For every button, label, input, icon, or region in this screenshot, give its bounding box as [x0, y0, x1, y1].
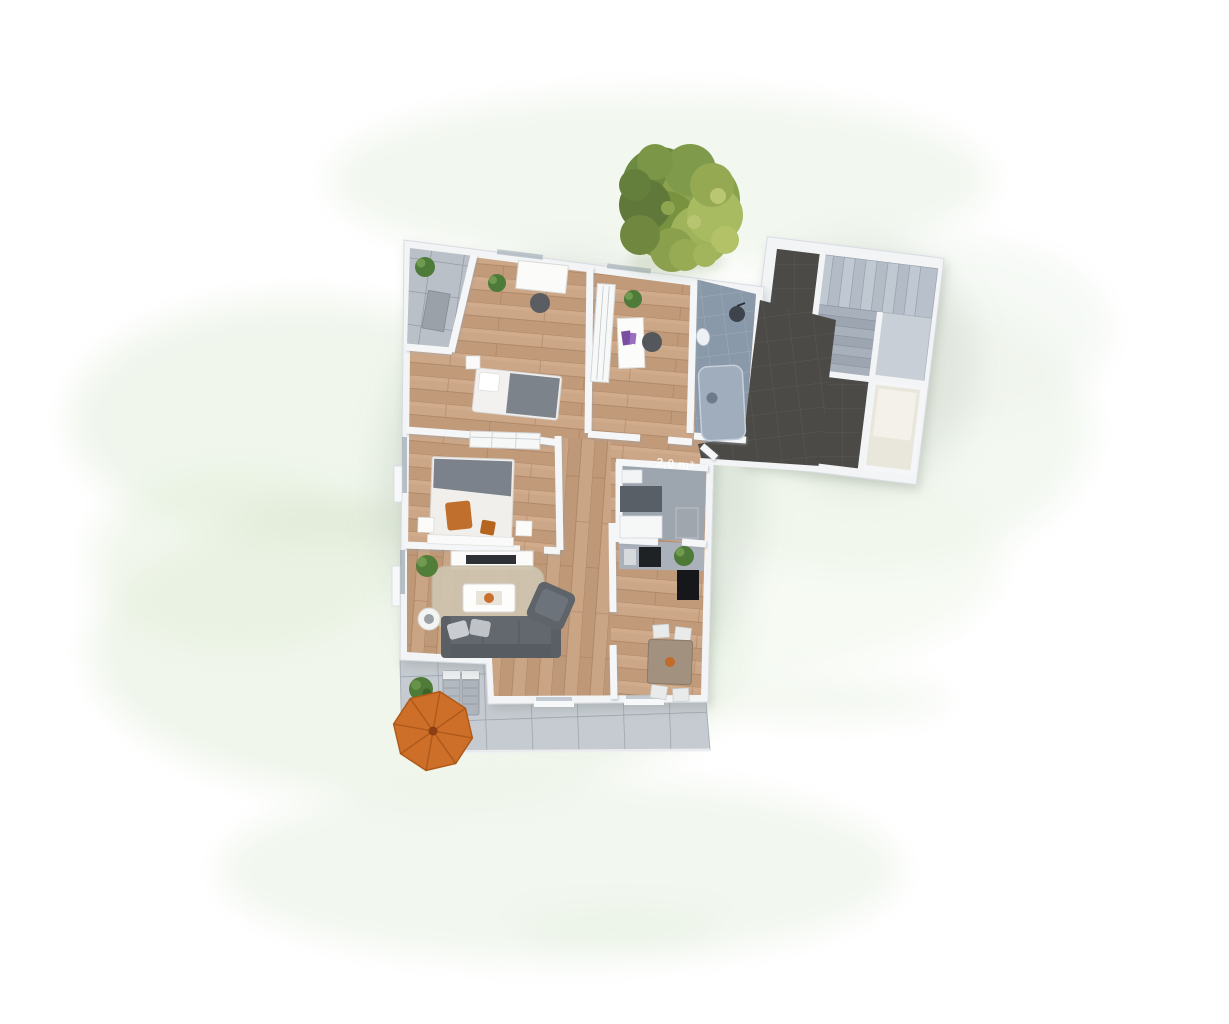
cooktop	[639, 547, 661, 567]
dining-chair	[653, 624, 670, 638]
master-wardrobe	[470, 431, 541, 449]
single-bed	[472, 368, 562, 421]
door-threshold	[534, 701, 574, 707]
door-threshold	[624, 699, 664, 705]
storage-cabinet-dark	[620, 486, 662, 512]
tv	[466, 555, 516, 564]
study-chair	[642, 332, 662, 352]
kitchen-sink	[624, 549, 636, 565]
dining-chair	[673, 688, 690, 702]
floor-plan-canvas: 2,0 m²	[0, 0, 1229, 1024]
storage-counter	[620, 516, 662, 538]
window-sill	[392, 566, 400, 606]
double-bed	[427, 457, 516, 547]
storage-cabinet	[676, 508, 698, 538]
kitchen-island	[677, 570, 699, 600]
bedroom-desk	[516, 260, 569, 293]
bedroom-chair	[530, 293, 550, 313]
nightstand	[516, 521, 533, 537]
dining-chair	[674, 627, 691, 642]
floor-plan-render: 2,0 m²	[0, 0, 1229, 1024]
nightstand	[418, 517, 435, 533]
nightstand	[466, 356, 480, 369]
table-decor	[484, 593, 494, 603]
bathtub	[698, 365, 746, 441]
window-sill	[394, 466, 402, 502]
bathroom-sink	[729, 306, 745, 322]
dining-chair	[650, 685, 668, 700]
